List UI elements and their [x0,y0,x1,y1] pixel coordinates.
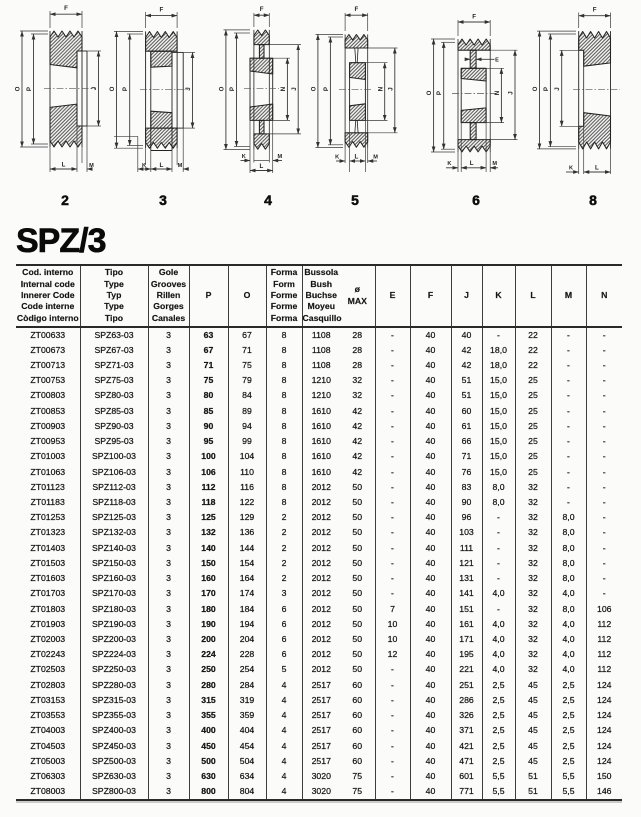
svg-text:L: L [62,162,66,169]
svg-text:M: M [277,154,282,160]
svg-text:O: O [532,86,539,91]
svg-text:J: J [554,87,561,91]
svg-text:P: P [436,91,443,95]
svg-text:P: P [229,87,236,91]
svg-text:M: M [89,163,94,169]
svg-text:O: O [109,86,116,91]
svg-text:J: J [185,87,192,91]
svg-text:L: L [470,160,474,167]
svg-text:F: F [64,5,68,12]
svg-text:F: F [260,6,264,13]
svg-text:M: M [178,163,183,169]
svg-text:4: 4 [264,192,272,208]
svg-text:F: F [355,6,359,13]
svg-text:J: J [91,86,98,90]
svg-text:3: 3 [159,192,167,208]
svg-text:J: J [291,87,298,91]
svg-text:K: K [142,163,146,169]
svg-text:K: K [242,154,246,160]
svg-text:N: N [494,90,501,95]
svg-text:8: 8 [589,192,597,208]
svg-text:P: P [543,87,550,91]
svg-text:P: P [122,87,129,91]
svg-text:K: K [447,161,451,167]
svg-text:F: F [160,7,164,14]
svg-text:O: O [310,86,317,91]
svg-text:L: L [595,165,599,172]
svg-text:O: O [426,90,433,95]
svg-text:K: K [335,155,339,161]
svg-text:N: N [280,86,287,91]
svg-text:L: L [355,154,359,161]
svg-text:P: P [323,87,330,91]
svg-text:F: F [593,6,597,13]
svg-text:O: O [15,86,22,91]
svg-text:K: K [569,166,573,172]
svg-text:J: J [508,91,515,95]
svg-text:M: M [373,155,378,161]
svg-text:N: N [377,86,384,91]
svg-text:O: O [218,86,225,91]
svg-text:F: F [472,14,476,21]
svg-text:J: J [387,87,394,91]
svg-text:L: L [160,162,164,169]
svg-text:5: 5 [351,192,359,208]
svg-text:2: 2 [61,192,69,208]
svg-text:6: 6 [472,192,480,208]
svg-text:M: M [492,161,497,167]
svg-text:E: E [495,57,499,63]
svg-text:P: P [26,87,33,91]
svg-text:L: L [260,163,264,170]
